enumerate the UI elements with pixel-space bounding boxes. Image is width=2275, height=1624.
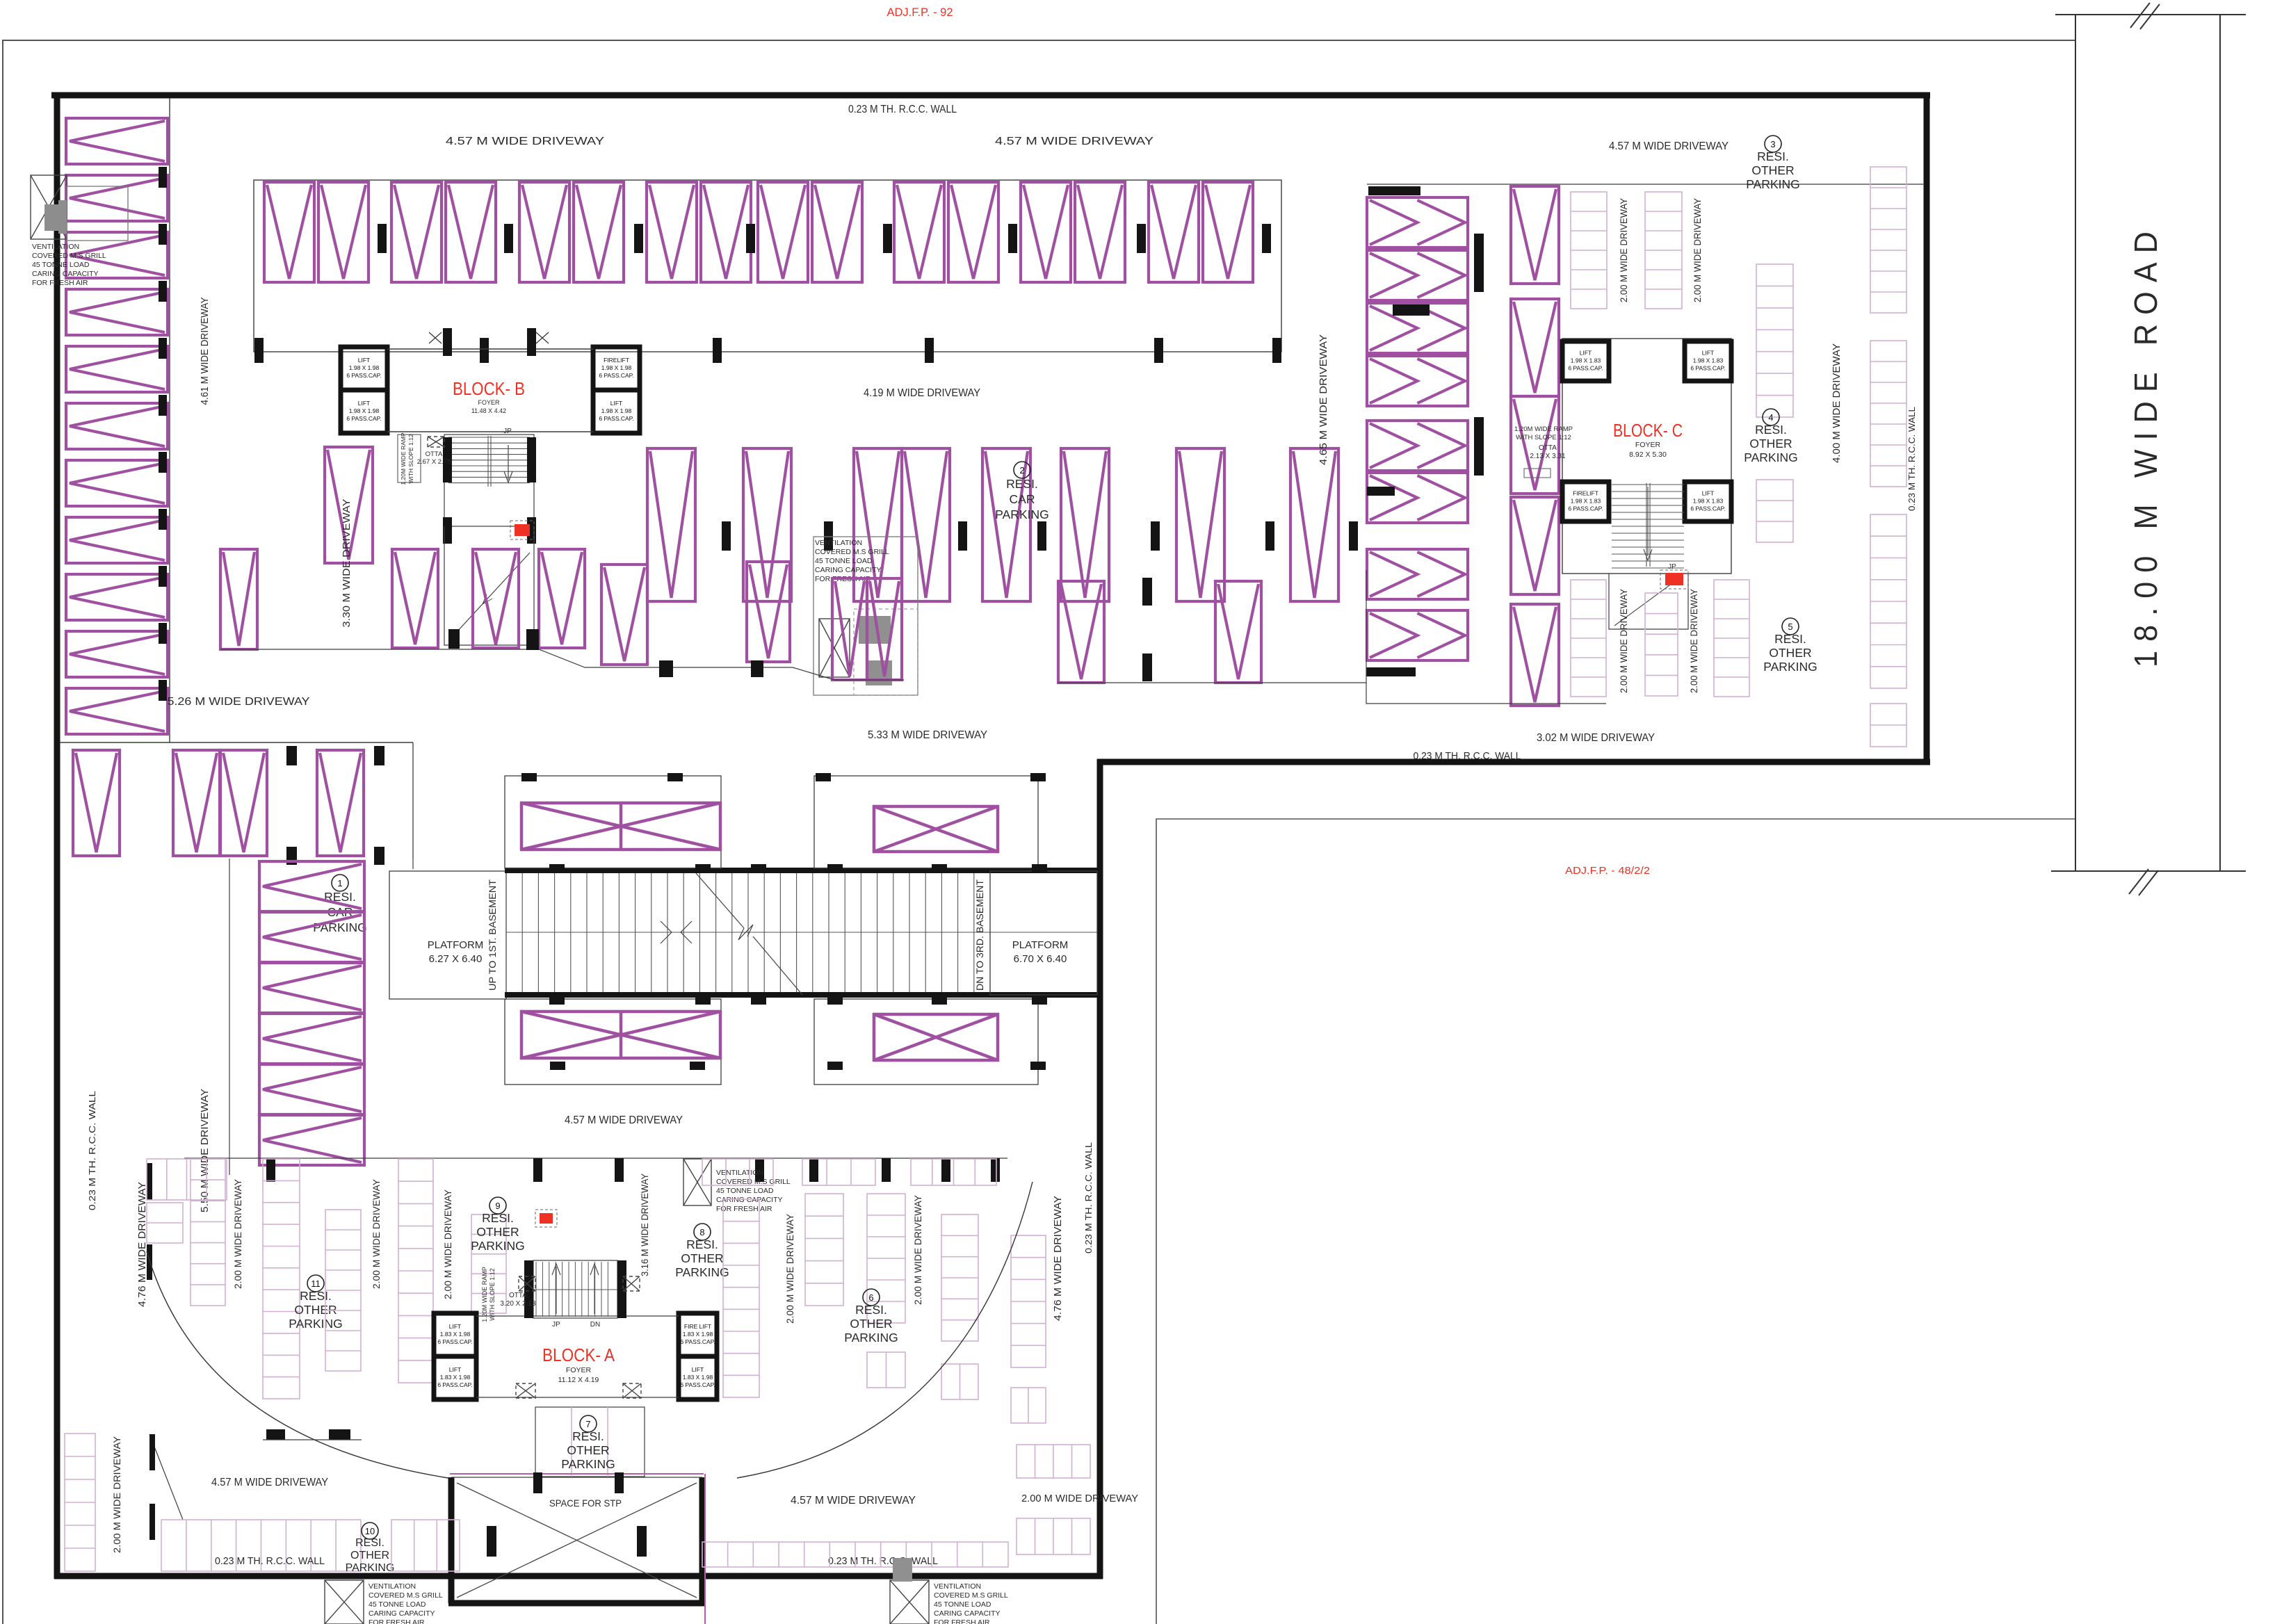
svg-text:FIRE LIFT: FIRE LIFT (684, 1323, 711, 1330)
svg-text:4.57 M WIDE DRIVEWAY: 4.57 M WIDE DRIVEWAY (446, 136, 604, 147)
svg-text:1.98 X 1.98: 1.98 X 1.98 (601, 407, 632, 414)
svg-text:1.98 X 1.83: 1.98 X 1.83 (1693, 498, 1724, 505)
svg-text:1.98 X 1.98: 1.98 X 1.98 (349, 407, 380, 414)
svg-text:LIFT: LIFT (1702, 350, 1714, 357)
svg-text:4.61 M WIDE DRIVEWAY: 4.61 M WIDE DRIVEWAY (199, 298, 211, 405)
svg-text:PARKING: PARKING (1744, 450, 1797, 464)
svg-text:2.00 M WIDE DRIVEWAY: 2.00 M WIDE DRIVEWAY (443, 1189, 453, 1299)
svg-text:ADJ.F.P. - 92: ADJ.F.P. - 92 (887, 6, 953, 19)
svg-text:OTHER: OTHER (350, 1550, 389, 1561)
svg-text:1.83 X 1.98: 1.83 X 1.98 (683, 1331, 713, 1338)
svg-text:PARKING: PARKING (1763, 660, 1817, 674)
svg-text:SPACE FOR STP: SPACE FOR STP (549, 1497, 622, 1509)
svg-text:COVERED M.S GRILL: COVERED M.S GRILL (934, 1591, 1008, 1600)
svg-text:LIFT: LIFT (449, 1323, 461, 1330)
svg-text:2.00 M WIDE DRIVEWAY: 2.00 M WIDE DRIVEWAY (1619, 589, 1629, 693)
svg-text:45 TONNE LOAD: 45 TONNE LOAD (934, 1600, 991, 1609)
svg-text:1.83 X 1.98: 1.83 X 1.98 (440, 1374, 471, 1381)
svg-text:RESI.: RESI. (300, 1289, 332, 1303)
svg-text:CARING CAPACITY: CARING CAPACITY (716, 1196, 782, 1204)
svg-text:6 PASS.CAP.: 6 PASS.CAP. (599, 372, 633, 379)
svg-text:0.23 M TH. R.C.C. WALL: 0.23 M TH. R.C.C. WALL (828, 1555, 938, 1567)
svg-text:COVERED M.S GRILL: COVERED M.S GRILL (369, 1591, 443, 1600)
svg-text:COVERED M.S GRILL: COVERED M.S GRILL (815, 548, 889, 556)
svg-text:10: 10 (365, 1526, 375, 1536)
svg-text:OTHER: OTHER (294, 1303, 337, 1317)
svg-text:2.67 X 2.78: 2.67 X 2.78 (417, 458, 451, 466)
svg-text:RESI.: RESI. (686, 1237, 718, 1251)
svg-text:45 TONNE LOAD: 45 TONNE LOAD (32, 261, 90, 269)
svg-text:2.00 M WIDE DRIVEWAY: 2.00 M WIDE DRIVEWAY (1689, 589, 1699, 693)
svg-text:1.98 X 1.83: 1.98 X 1.83 (1571, 357, 1601, 364)
svg-text:RESI.: RESI. (1757, 149, 1789, 163)
svg-text:6 PASS.CAP.: 6 PASS.CAP. (1690, 365, 1725, 372)
svg-text:2.00 M WIDE DRIVEWAY: 2.00 M WIDE DRIVEWAY (1021, 1493, 1138, 1504)
svg-text:JP: JP (1668, 563, 1676, 571)
svg-text:1.98 X 1.83: 1.98 X 1.83 (1571, 498, 1601, 505)
svg-text:BLOCK- C: BLOCK- C (1613, 420, 1683, 441)
svg-text:FOYER: FOYER (1635, 441, 1661, 449)
svg-text:FOR FRESH AIR: FOR FRESH AIR (369, 1618, 425, 1624)
svg-text:VENTILATION: VENTILATION (716, 1169, 763, 1177)
svg-text:2.00 M WIDE DRIVEWAY: 2.00 M WIDE DRIVEWAY (913, 1195, 923, 1305)
svg-text:6 PASS.CAP.: 6 PASS.CAP. (1568, 365, 1603, 372)
svg-text:6 PASS.CAP.: 6 PASS.CAP. (437, 1338, 472, 1345)
svg-text:OTHER: OTHER (567, 1443, 609, 1457)
svg-text:2.00 M WIDE DRIVEWAY: 2.00 M WIDE DRIVEWAY (1619, 198, 1629, 302)
svg-text:1.98 X 1.98: 1.98 X 1.98 (601, 364, 632, 371)
svg-text:5.33 M WIDE DRIVEWAY: 5.33 M WIDE DRIVEWAY (868, 729, 987, 741)
svg-text:0.23 M TH. R.C.C. WALL: 0.23 M TH. R.C.C. WALL (848, 104, 957, 115)
svg-text:WITH SLOPE 1:12: WITH SLOPE 1:12 (1516, 434, 1571, 441)
svg-text:LIFT: LIFT (358, 357, 370, 364)
svg-text:VENTILATION: VENTILATION (934, 1582, 981, 1591)
svg-text:LIFT: LIFT (1702, 490, 1714, 497)
svg-text:45 TONNE LOAD: 45 TONNE LOAD (815, 557, 873, 565)
svg-text:LIFT: LIFT (610, 400, 622, 407)
svg-text:6 PASS.CAP.: 6 PASS.CAP. (1690, 505, 1725, 512)
svg-text:DN: DN (590, 1321, 600, 1329)
svg-text:LIFT: LIFT (1580, 350, 1592, 357)
svg-text:2.00 M WIDE DRIVEWAY: 2.00 M WIDE DRIVEWAY (1692, 198, 1703, 302)
svg-text:WITH SLOPE 1:12: WITH SLOPE 1:12 (489, 1268, 496, 1321)
svg-text:PARKING: PARKING (471, 1239, 524, 1253)
svg-text:4.19 M WIDE DRIVEWAY: 4.19 M WIDE DRIVEWAY (864, 387, 980, 399)
svg-text:5.50 M WIDE DRIVEWAY: 5.50 M WIDE DRIVEWAY (199, 1089, 211, 1212)
svg-text:FOR FRESH AIR: FOR FRESH AIR (32, 279, 88, 287)
svg-text:6 PASS.CAP.: 6 PASS.CAP. (680, 1338, 715, 1345)
svg-text:0.23 M TH. R.C.C. WALL: 0.23 M TH. R.C.C. WALL (215, 1555, 325, 1567)
svg-text:PARKING: PARKING (561, 1457, 615, 1471)
svg-text:LIFT: LIFT (449, 1366, 461, 1373)
svg-text:PARKING: PARKING (1746, 177, 1799, 191)
svg-text:4: 4 (1768, 412, 1773, 423)
svg-text:2.00 M WIDE DRIVEWAY: 2.00 M WIDE DRIVEWAY (111, 1436, 122, 1553)
svg-text:11.12 X 4.19: 11.12 X 4.19 (558, 1376, 599, 1384)
svg-text:45 TONNE LOAD: 45 TONNE LOAD (369, 1600, 426, 1609)
svg-text:RESI.: RESI. (1755, 423, 1787, 437)
svg-text:6 PASS.CAP.: 6 PASS.CAP. (680, 1381, 715, 1388)
svg-text:OTTA: OTTA (426, 450, 443, 458)
svg-text:3.30 M WIDE DRIVEWAY: 3.30 M WIDE DRIVEWAY (341, 499, 353, 628)
svg-text:OTHER: OTHER (1751, 163, 1794, 177)
svg-text:6 PASS.CAP.: 6 PASS.CAP. (437, 1381, 472, 1388)
svg-text:LIFT: LIFT (358, 400, 370, 407)
svg-text:OTHER: OTHER (1769, 646, 1811, 660)
svg-text:BLOCK- A: BLOCK- A (542, 1345, 615, 1365)
svg-text:CARING CAPACITY: CARING CAPACITY (815, 566, 881, 574)
svg-text:ADJ.F.P. - 48/2/2: ADJ.F.P. - 48/2/2 (1565, 865, 1650, 877)
svg-text:VENTILATION: VENTILATION (369, 1582, 416, 1591)
svg-text:VENTILATION: VENTILATION (815, 539, 862, 547)
svg-text:8.92 X 5.30: 8.92 X 5.30 (1629, 450, 1667, 459)
svg-text:OTTA: OTTA (1539, 444, 1557, 452)
svg-text:0.23 M TH. R.C.C. WALL: 0.23 M TH. R.C.C. WALL (87, 1091, 97, 1210)
svg-text:FOR FRESH AIR: FOR FRESH AIR (934, 1618, 990, 1624)
svg-text:6.70 X 6.40: 6.70 X 6.40 (1014, 953, 1067, 965)
svg-text:4.65 M WIDE DRIVEWAY: 4.65 M WIDE DRIVEWAY (1318, 334, 1329, 465)
svg-text:11: 11 (311, 1278, 321, 1289)
svg-text:CAR: CAR (1010, 492, 1035, 506)
svg-text:OTHER: OTHER (1749, 437, 1792, 450)
svg-text:6 PASS.CAP.: 6 PASS.CAP. (346, 415, 381, 422)
svg-text:7: 7 (585, 1419, 590, 1429)
svg-text:1.20M WIDE RAMP: 1.20M WIDE RAMP (481, 1267, 488, 1322)
svg-text:4.00 M WIDE DRIVEWAY: 4.00 M WIDE DRIVEWAY (1831, 343, 1843, 463)
svg-text:VENTILATION: VENTILATION (32, 243, 79, 251)
svg-text:RESI.: RESI. (1774, 632, 1806, 646)
svg-text:JP: JP (552, 1321, 560, 1329)
svg-text:PARKING: PARKING (844, 1331, 898, 1345)
svg-text:1.20M WIDE RAMP: 1.20M WIDE RAMP (400, 432, 407, 485)
svg-text:CARING CAPACITY: CARING CAPACITY (369, 1609, 435, 1618)
svg-text:JP: JP (503, 428, 512, 435)
svg-text:PARKING: PARKING (995, 507, 1049, 521)
svg-text:2.13 X 3.31: 2.13 X 3.31 (1530, 453, 1566, 460)
svg-text:3: 3 (1770, 139, 1775, 149)
svg-text:0.23 M TH. R.C.C. WALL: 0.23 M TH. R.C.C. WALL (1414, 750, 1521, 762)
svg-text:4.76 M WIDE DRIVEWAY: 4.76 M WIDE DRIVEWAY (136, 1182, 148, 1307)
svg-text:FIRELIFT: FIRELIFT (1573, 490, 1598, 497)
svg-text:6.27 X 6.40: 6.27 X 6.40 (429, 953, 483, 965)
svg-text:FOR FRESH AIR: FOR FRESH AIR (716, 1205, 772, 1213)
svg-text:OTHER: OTHER (850, 1317, 892, 1331)
svg-text:5: 5 (1788, 622, 1792, 632)
svg-text:4.57 M WIDE DRIVEWAY: 4.57 M WIDE DRIVEWAY (791, 1495, 916, 1507)
svg-text:45 TONNE LOAD: 45 TONNE LOAD (716, 1187, 774, 1195)
svg-text:11.48 X 4.42: 11.48 X 4.42 (471, 407, 506, 414)
svg-text:RESI.: RESI. (482, 1211, 514, 1225)
svg-text:4.57 M WIDE DRIVEWAY: 4.57 M WIDE DRIVEWAY (211, 1477, 328, 1488)
svg-text:COVERED M.S GRILL: COVERED M.S GRILL (716, 1178, 791, 1186)
svg-text:4.76 M WIDE DRIVEWAY: 4.76 M WIDE DRIVEWAY (1052, 1196, 1064, 1321)
svg-text:OTHER: OTHER (681, 1251, 723, 1265)
svg-text:PARKING: PARKING (675, 1265, 729, 1279)
svg-text:1.83 X 1.98: 1.83 X 1.98 (440, 1331, 471, 1338)
svg-text:1: 1 (337, 878, 342, 888)
svg-text:9: 9 (495, 1201, 500, 1211)
svg-text:8: 8 (699, 1227, 704, 1237)
svg-text:DN TO 3RD. BASEMENT: DN TO 3RD. BASEMENT (974, 879, 985, 991)
svg-text:PARKING: PARKING (289, 1317, 342, 1331)
svg-text:3.02 M WIDE DRIVEWAY: 3.02 M WIDE DRIVEWAY (1537, 732, 1655, 744)
svg-text:0.23 M TH. R.C.C. WALL: 0.23 M TH. R.C.C. WALL (1906, 407, 1917, 511)
svg-text:4.57 M WIDE DRIVEWAY: 4.57 M WIDE DRIVEWAY (995, 136, 1153, 147)
svg-text:0.23 M TH. R.C.C. WALL: 0.23 M TH. R.C.C. WALL (1083, 1142, 1094, 1253)
svg-text:UP TO 1ST. BASEMENT: UP TO 1ST. BASEMENT (487, 879, 498, 991)
svg-text:1.98 X 1.98: 1.98 X 1.98 (349, 364, 380, 371)
svg-text:6 PASS.CAP.: 6 PASS.CAP. (599, 415, 633, 422)
svg-text:6 PASS.CAP.: 6 PASS.CAP. (1568, 505, 1603, 512)
svg-text:FOYER: FOYER (566, 1366, 592, 1374)
svg-text:3.20 X 2.13: 3.20 X 2.13 (500, 1300, 536, 1308)
svg-text:CARING CAPACITY: CARING CAPACITY (934, 1609, 1000, 1618)
svg-text:RESI.: RESI. (855, 1303, 887, 1317)
svg-text:COVERED M.S GRILL: COVERED M.S GRILL (32, 252, 106, 260)
svg-text:6: 6 (868, 1292, 873, 1303)
svg-text:3.16 M WIDE DRIVEWAY: 3.16 M WIDE DRIVEWAY (639, 1173, 650, 1276)
svg-text:4.57 M WIDE DRIVEWAY: 4.57 M WIDE DRIVEWAY (565, 1114, 683, 1126)
svg-text:18.00 M WIDE ROAD: 18.00 M WIDE ROAD (2128, 222, 2164, 667)
svg-text:BLOCK- B: BLOCK- B (453, 378, 525, 399)
svg-text:5.26 M WIDE DRIVEWAY: 5.26 M WIDE DRIVEWAY (168, 696, 310, 708)
svg-text:1.20M WIDE RAMP: 1.20M WIDE RAMP (1514, 425, 1573, 433)
svg-text:FOYER: FOYER (478, 399, 500, 406)
svg-text:PARKING: PARKING (346, 1562, 395, 1574)
svg-text:2.00 M WIDE DRIVEWAY: 2.00 M WIDE DRIVEWAY (371, 1179, 382, 1289)
svg-text:CARING CAPACITY: CARING CAPACITY (32, 270, 98, 278)
svg-text:WITH SLOPE 1:12: WITH SLOPE 1:12 (407, 434, 414, 484)
svg-text:PLATFORM: PLATFORM (1012, 939, 1069, 951)
svg-text:1.83 X 1.98: 1.83 X 1.98 (683, 1374, 713, 1381)
svg-text:RESI.: RESI. (355, 1537, 384, 1549)
svg-text:OTHER: OTHER (476, 1225, 519, 1239)
svg-text:PLATFORM: PLATFORM (428, 939, 484, 951)
svg-text:2.00 M WIDE DRIVEWAY: 2.00 M WIDE DRIVEWAY (785, 1214, 795, 1324)
svg-text:LIFT: LIFT (692, 1366, 704, 1373)
svg-text:2.00 M WIDE DRIVEWAY: 2.00 M WIDE DRIVEWAY (233, 1179, 243, 1289)
svg-text:2: 2 (1019, 465, 1024, 476)
svg-text:1.98 X 1.83: 1.98 X 1.83 (1693, 357, 1724, 364)
svg-text:RESI.: RESI. (1006, 477, 1038, 491)
svg-text:6 PASS.CAP.: 6 PASS.CAP. (346, 372, 381, 379)
svg-text:RESI.: RESI. (572, 1429, 604, 1443)
svg-text:4.57 M WIDE DRIVEWAY: 4.57 M WIDE DRIVEWAY (1609, 140, 1728, 152)
svg-text:FIRELIFT: FIRELIFT (604, 357, 629, 364)
svg-text:OTTA: OTTA (509, 1292, 527, 1299)
